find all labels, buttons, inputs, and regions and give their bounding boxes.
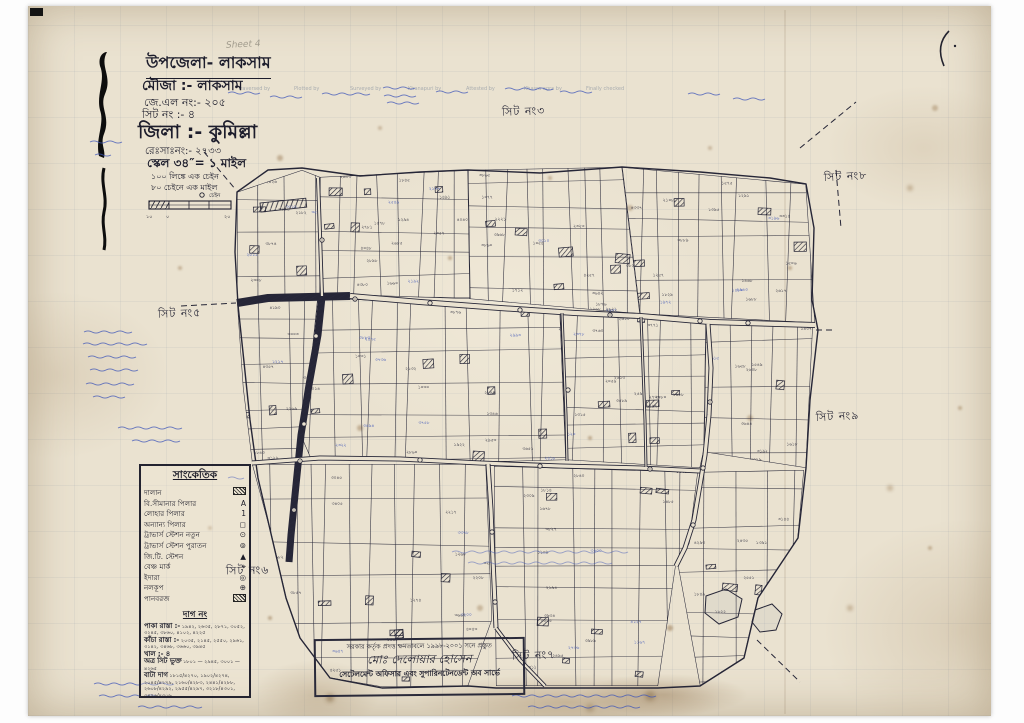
building-hatched (539, 429, 547, 438)
plot-number: ২৯৫৩ (485, 438, 496, 443)
legend-item-label: ট্রাভার্স স্টেশন পুরাতন (144, 541, 207, 552)
road-casing (318, 178, 322, 296)
plot-number: ২৬১৩ (614, 376, 625, 381)
plot-number: ১০৩১ (355, 354, 366, 359)
plot-number: ২৯৪৩ (737, 288, 748, 293)
plot-number: ১৬৭৮ (539, 507, 550, 512)
plot-number: ২৭৩৭ (649, 396, 660, 401)
plot-number: ৩০৪৫ (331, 476, 342, 481)
plot-number: ২৬৮২ (272, 556, 283, 561)
road-casing (488, 464, 496, 628)
scale-bar: ১০ ০ ২০ চেইন (146, 190, 246, 222)
plot-number: ২৩৭৮ (573, 332, 584, 337)
plot-number: ১২৬৮ (455, 553, 466, 558)
plot-number: ৩৮৮৯ (677, 239, 688, 244)
road-casing (289, 297, 322, 562)
plot-number: ১১৬৭ (634, 641, 645, 646)
road-casing (676, 324, 711, 566)
plot-number: ১০৫৪ (533, 241, 544, 246)
building-hatched (486, 220, 496, 227)
plot-number: ৩৭৫৭ (797, 175, 808, 180)
building-hatched (460, 354, 470, 363)
plot-number: ৩৫২৮ (311, 211, 322, 216)
parcel-block: ১৬৬০২৭৮১২১৯২২১৭৭২৩৫৭২৯০৩১৪৭৮১৪৯১৪০৪০২৮৯৮… (320, 170, 470, 299)
plot-number: ৩৮৬০ (481, 244, 492, 249)
plot-number: ২৩২২ (335, 443, 346, 448)
well-symbol (698, 319, 702, 323)
building-hatched (722, 583, 738, 592)
building-hatched (718, 457, 725, 463)
building-hatched (269, 406, 276, 415)
plot-number: ৩৯৬৮ (494, 233, 505, 238)
plot-number: ২১৩২ (405, 367, 416, 372)
blue-ink-scribble (83, 343, 147, 345)
plot-number: ৩১২৯ (267, 456, 278, 461)
well-symbol (298, 459, 302, 463)
plot-number: ১৮২২ (715, 610, 726, 615)
parcel-block: ৩৫১৯৩৫২৮৩৮৭৪২৩০৮২৬৯০৩৪৯৬২৫১১২৫৮৪২৪২৬২১৮২ (237, 170, 323, 302)
legend-item-label: পানবরজ (144, 594, 170, 605)
blue-ink-scribble (512, 695, 656, 697)
dag-row: অত্র সিট ভুক্ত ১৮০১ — ২৯৪৫, ৩০০১ — ৪২৬৫ (144, 658, 246, 672)
road-metalled (289, 297, 322, 562)
blue-ink-scribble (468, 562, 612, 564)
plot-number: ২৪৭৫ (365, 337, 376, 342)
form-column-label: Khanapuri by (408, 86, 441, 92)
road (562, 313, 567, 461)
plot-number: ৪১২৭ (630, 620, 641, 625)
binding-fold-mark (96, 50, 126, 260)
blue-ink-scribble (86, 383, 134, 385)
road (252, 458, 700, 471)
scalebar-left-label: ১০ (146, 214, 153, 220)
plot-number: ৩৩৩১ (531, 304, 542, 309)
plot-number: ৩৮২৮ (626, 264, 637, 269)
building-hatched (615, 253, 630, 264)
paper-stains (28, 6, 32, 10)
well-symbol (691, 523, 695, 527)
blue-ink-scribble (132, 440, 180, 442)
plot-number: ১৬১৫ (708, 356, 719, 361)
form-column-label: Surveyed by (350, 86, 381, 92)
plot-number: ৩৪০৫ (332, 502, 343, 507)
building-hatched (656, 488, 669, 494)
plot-number: ৩৬৬৭ (454, 613, 465, 618)
blue-ink-scribble (733, 98, 765, 100)
plot-number: ৩০০৩ (287, 332, 298, 337)
form-column-label: Plotted by (294, 86, 319, 92)
parcel-block: ৩৫৮৯২৬১৩২৭৩৭২৫৯৯২৫৪৭২৩৭৮২০৫৯৩৭৭১২০৮০১৯৮৮… (560, 311, 706, 468)
road-casing (252, 458, 700, 471)
pen-mark (933, 28, 963, 78)
plot-number: ২৮৬০ (406, 450, 417, 455)
well-symbol (302, 422, 306, 426)
legend-row: পানবরজ (144, 594, 246, 606)
plot-number: ৪২৫৭ (583, 274, 594, 279)
plot-number: ২৪২৬ (266, 180, 277, 185)
legend-item-symbol: 1 (233, 509, 246, 520)
plot-number: ১৪৭৮ (374, 221, 385, 226)
plot-number: ২১৯৪ (546, 586, 557, 591)
paper-fold-line (784, 10, 786, 714)
blue-ink-scribble (387, 102, 419, 104)
well-symbol (292, 508, 296, 512)
blue-ink-scribble (322, 93, 370, 95)
plot-number: ৩৮৭৬ (450, 310, 461, 315)
plot-number: ২৬১০ (618, 317, 629, 322)
building-hatched (706, 564, 716, 569)
plot-number: ১৮২৯ (662, 293, 673, 298)
plot-number: ২২১৭ (445, 511, 456, 516)
dag-row: বাটা দাগ ১৮১৫/৪২৭০, ১৯০২/৪২৭৪, ২০৪৫/৪২৭৯… (144, 672, 246, 699)
building-hatched (253, 207, 265, 212)
building-hatched (629, 433, 637, 443)
plot-number: ৩৮৫৭ (290, 591, 301, 596)
well-symbol (701, 466, 705, 470)
plot-number: ১৯৮৮ (673, 393, 684, 398)
plot-number: ৩৩৭৮ (458, 531, 469, 536)
legend-item-label: লোহার পিলার (144, 509, 185, 520)
dag-rows: পাকা রাস্তা :- ১৯৪২, ২৬৩৫, ২৮৭১, ৩০৫২, ৩… (144, 623, 246, 700)
road-casing (237, 296, 350, 303)
legend-row: লোহার পিলার1 (144, 509, 246, 520)
building-hatched (537, 617, 548, 626)
plot-number: ১৮৪৯ (694, 592, 705, 597)
legend-item-symbol: ◻ (233, 520, 246, 531)
plot-number: ১৬২৩ (257, 682, 268, 687)
road (641, 317, 646, 467)
sheet-edge-dash (800, 102, 856, 148)
well-symbol (320, 238, 324, 242)
legend-rows: দালানবি.সীমানার পিলারAলোহার পিলার1অন্যান… (144, 487, 246, 606)
plot-number: ১৫০৬ (785, 261, 796, 266)
plot-number: ৩২৮৫ (541, 619, 552, 624)
plot-number: ১২৯১ (738, 194, 749, 199)
adjacent-sheet-label: সিট নং৮ (824, 167, 868, 188)
plot-number: ১৯২২ (454, 443, 465, 448)
plot-number: ২৮৫০ (721, 671, 732, 676)
building-hatched (650, 438, 660, 444)
plot-number: ১৫৪৯ (751, 363, 762, 368)
building-hatched (708, 460, 717, 469)
plot-number: ২৫৪৭ (646, 405, 657, 410)
building-hatched (562, 658, 569, 663)
well-symbol (648, 467, 652, 471)
road (350, 296, 815, 325)
plot-number: ১১২০ (564, 432, 575, 437)
plot-number: ২৪১৮ (544, 457, 555, 462)
plot-number: ২১৭৭ (429, 187, 440, 192)
blue-ink-scribble (528, 706, 640, 708)
legend-item-label: নলকূপ (144, 583, 164, 594)
building-hatched (435, 186, 443, 192)
plot-number: ২৩৫৭ (433, 232, 444, 237)
plot-number: ৩৬৫১ (522, 447, 533, 452)
sheet-edge-dash (757, 640, 800, 682)
plot-number: ৪৩৫৭ (263, 365, 274, 370)
building-hatched (329, 188, 342, 196)
approval-stamp-box: সরকার কর্তৃক প্রদত্ত ক্ষমতাবলে ১৯৯৮-২০০১… (314, 637, 526, 697)
blue-ink-scribble (452, 551, 628, 553)
plot-number: ২২০৮ (473, 576, 484, 581)
plot-number: ৩৮৮৩ (359, 336, 370, 341)
ladder-road-symbol (260, 198, 307, 212)
plot-number: ৩৭৬০ (592, 329, 603, 334)
parcel-block: ৪১৯০৩০০৩৩১২৯৩৫৭৬১৮৪৩৪৩৫৭১২১৭২২৬৯ (237, 297, 318, 462)
plot-number: ২১০৮ (663, 199, 674, 204)
pond-outline (752, 604, 782, 632)
plot-number: ৪০৪৩ (466, 627, 477, 632)
building-hatched (365, 596, 373, 605)
plot-number: ১৪৮৫ (663, 500, 674, 505)
parcel-block: ২৬০৮১৫৪৯১৬১৮৩৬৪৪৩০২৯১৬৫৮১৪৩৭৩১৯২১৬১৫ (704, 320, 813, 469)
building-hatched (250, 246, 260, 254)
plot-number: ৪১৯০ (269, 306, 280, 311)
plot-number: ১৮১৪ (541, 489, 552, 494)
building-hatched (242, 412, 249, 417)
road-casing (641, 317, 646, 467)
dag-section-title: দাগ নং (144, 608, 246, 622)
plot-number: ৩৯৩৪ (544, 614, 555, 619)
building-hatched (591, 629, 602, 634)
plot-number: ১৬১৮ (786, 442, 797, 447)
plot-number: ৪০৪৮ (360, 246, 371, 251)
plot-number: ২৫৫১ (743, 576, 754, 581)
building-hatched (521, 310, 529, 317)
adjacent-sheet-label: সিট নং৩ (502, 102, 546, 123)
road (676, 324, 711, 566)
plot-number: ২৫৮৪ (286, 295, 297, 300)
mouza-boundary (235, 167, 818, 688)
well-symbol (418, 458, 422, 462)
plot-number: ২১৯২ (408, 280, 419, 285)
plot-number: ৩৯৮৯ (585, 639, 596, 644)
plot-number: ৩২০০ (461, 613, 472, 618)
plot-number: ২২২১ (495, 217, 506, 222)
adjacent-sheet-label: সিট নং৫ (158, 304, 202, 325)
plot-number: ১১০৯ (537, 551, 548, 556)
plot-number: ৩৬৪২ (592, 292, 603, 297)
plot-number: ১২১৭ (272, 360, 283, 365)
scalebar-zero-label: ০ (166, 214, 169, 220)
plot-number: ১৬৮৮ (745, 297, 756, 302)
plot-number: ৩২৮৩ (483, 562, 494, 567)
plot-number: ২৯০৭ (606, 309, 617, 314)
building-hatched (637, 316, 645, 323)
plot-number: ৩৮৬৫ (479, 174, 490, 179)
plot-number: ১২৬৪ (432, 302, 443, 307)
plot-number: ২৩২৩ (573, 225, 584, 230)
building-hatched (794, 242, 806, 251)
building-hatched (674, 198, 684, 206)
building-hatched (598, 401, 610, 407)
plot-number: ২০৮০ (655, 396, 666, 401)
plot-number: ২২৬৯ (286, 407, 297, 412)
plot-number: ২৬৮৫ (391, 242, 402, 247)
building-hatched (758, 208, 771, 215)
legend-title: সাংকেতিক (144, 468, 246, 485)
building-hatched (351, 223, 360, 232)
plot-number: ৩১৯২ (757, 450, 768, 455)
parcel-block: ২১০৮৪৩৩৭১৮২৯১৪৬৮১৫০৬১২৫৭১৯৭২১৬৮৮৩১৯৬৩৭৫৭… (622, 167, 815, 323)
adjacent-sheet-label: সিট নং৭ (512, 646, 556, 667)
plot-number: ৩৪৯৪ (363, 424, 374, 429)
plot-number: ৩৭৭১ (647, 323, 658, 328)
plot-number: ১৪৯১ (439, 195, 450, 200)
plot-number: ১৩৯১ (756, 541, 767, 546)
stamp-signature: মোঃ দেলোয়ার হোসেন (318, 650, 521, 669)
plot-number: ১২৬৮ (590, 307, 601, 312)
road (488, 464, 496, 628)
building-hatched (390, 630, 403, 636)
plot-number: ১৫০৫ (502, 302, 513, 307)
legend-item-label: জি.টি. স্টেশন (144, 552, 183, 563)
parcel-block: ৩৬৪২২৯০৭১২৬৮৩৮৬৫৪২৫৭২৬২১৩৮৬০১০৫৪৩০১০১৮৭৬… (468, 167, 640, 314)
pond-outline (705, 589, 742, 624)
blue-ink-scribble (90, 369, 138, 371)
road (318, 178, 322, 296)
building-hatched (636, 292, 649, 299)
building-hatched (395, 629, 404, 638)
plot-number: ২৬০৮ (746, 368, 757, 373)
plot-number: ২৫৪৯ (388, 201, 399, 206)
well-symbol (708, 400, 712, 404)
building-hatched (627, 290, 636, 296)
plot-number: ৩৫৭৬ (303, 376, 314, 381)
legend-item-symbol (233, 594, 246, 606)
plot-number: ৩১৯৬ (768, 217, 779, 222)
plot-number: ২৫১১ (246, 253, 257, 258)
plot-number: ২৫৯০ (554, 310, 565, 315)
building-hatched (412, 551, 421, 557)
plot-number: ২৭৩৬ (568, 646, 579, 651)
blue-ink-scribble (118, 427, 182, 429)
well-symbol (314, 334, 318, 338)
form-column-label: Khasra agra by (524, 86, 562, 92)
legend-item-symbol: A (233, 499, 246, 510)
blue-ink-scribble (84, 331, 132, 333)
plot-number: ১৬৬০ (387, 282, 398, 287)
plot-number: ৪৩৩৭ (631, 206, 642, 211)
plot-number: ১২৭৪ (410, 599, 421, 604)
plot-number: ২০৫৯ (605, 380, 616, 385)
scalebar-unit-label: চেইন (209, 192, 221, 199)
plot-number: ৩৪৯৬ (278, 207, 289, 212)
plot-number: ১৬৫৮ (735, 364, 746, 369)
building-hatched (640, 487, 652, 494)
plot-number: ১৪৬৮ (741, 279, 752, 284)
plot-number: ২৫৮০ (261, 583, 272, 588)
plot-number: ২৩০৮ (250, 279, 261, 284)
plot-number: ১৩১৫ (574, 413, 585, 418)
building-hatched (633, 260, 644, 267)
adjacent-sheet-label: সিট নং৯ (816, 407, 860, 428)
building-hatched (558, 247, 573, 257)
scalebar-right-label: ২০ (224, 214, 231, 220)
plot-number: ২৩০৯ (523, 494, 534, 499)
plot-number: ৩৮৭৪ (265, 242, 276, 247)
plot-number: ১৮৭৬ (595, 303, 606, 308)
legend-item-symbol: ⊕ (233, 583, 246, 594)
plot-number: ১৮৪৫ (399, 179, 410, 184)
plot-number: ২০৩৯ (558, 327, 569, 332)
plot-number: ২৬৯০ (242, 183, 253, 188)
scanned-mouza-map-page: Sheet 4 Traversed byPlotted bySurveyed b… (0, 0, 1024, 723)
plot-number: ২৭৮১ (361, 225, 372, 230)
blue-ink-scribble (270, 96, 302, 98)
plot-number: ৩০২৯ (750, 458, 761, 463)
plot-number: ১০৭৭ (481, 195, 492, 200)
plot-number: ২১৮২ (295, 211, 306, 216)
building-hatched (515, 228, 527, 236)
plot-number: ১৭১২ (512, 289, 523, 294)
plot-number: ২৬৪০ (795, 637, 806, 642)
adjacent-sheet-label: সিট নং৬ (226, 562, 270, 582)
well-symbol (493, 600, 497, 604)
dag-row: কাঁচা রাস্তা :- ২০৩৫, ২১৪৫, ২৫৫০, ২৯৬১, … (144, 637, 246, 651)
well-symbol (490, 530, 494, 534)
building-hatched (423, 359, 434, 369)
corner-ink-mark (30, 8, 43, 16)
legend-item-symbol: ⊙ (233, 530, 246, 541)
building-hatched (297, 266, 307, 275)
well-symbol (608, 313, 612, 317)
plot-number: ১২৫৭ (653, 274, 664, 279)
plot-number: ১৩৪৬ (486, 412, 497, 417)
road-metalled (237, 296, 350, 303)
well-symbol (746, 321, 750, 325)
building-hatched (635, 671, 643, 677)
plot-number: ১৮৪৩ (254, 451, 265, 456)
plot-number: ২৮৪৯ (484, 391, 495, 396)
map-paper-sheet: Sheet 4 Traversed byPlotted bySurveyed b… (28, 6, 991, 716)
dag-row: পাকা রাস্তা :- ১৯৪২, ২৬৩৫, ২৮৭১, ৩০৫২, ৩… (144, 623, 246, 637)
plot-number: ৩৪৫৭ (265, 651, 276, 656)
plot-number: ২৯৯৩ (510, 334, 521, 339)
building-hatched (324, 223, 334, 229)
road-casing (562, 313, 567, 461)
plot-number: ৩৪০০ (591, 549, 602, 554)
plot-number: ১৫৭৫ (721, 182, 732, 187)
legend-item-label: ট্রাভার্স স্টেশন নতুন (144, 530, 200, 541)
plot-number: ১৩৯৫ (708, 208, 719, 213)
legend-row: নলকূপ⊕ (144, 583, 246, 594)
legend-item-label: বেঞ্চ মার্ক (144, 562, 171, 573)
plot-number: ১৫৭১ (676, 470, 687, 475)
blue-ink-scribble (688, 93, 720, 95)
plot-number: ১২৯৪ (398, 218, 409, 223)
building-hatched (364, 189, 371, 195)
blue-ink-scribble (93, 396, 125, 398)
legend-row: জি.টি. স্টেশন▲ (144, 552, 246, 563)
building-hatched (546, 493, 556, 500)
plot-number: ৩৪৪১ (263, 589, 274, 594)
plot-number: ৩৮২৭ (545, 528, 556, 533)
plot-number: ১৪৮০ (732, 288, 743, 293)
legend-item-label: অন্যান্য পিলার (144, 520, 186, 531)
well-symbol (353, 297, 357, 301)
plot-number: ৪৩৮০ (357, 283, 368, 288)
legend-item-label: বি.সীমানার পিলার (144, 499, 196, 510)
plot-number: ১০১৪ (309, 387, 320, 392)
legend-item-symbol: ▲ (233, 552, 246, 563)
plot-number: ৩০১০ (538, 239, 549, 244)
legend-row: অন্যান্য পিলার◻ (144, 520, 246, 531)
building-hatched (647, 400, 660, 407)
plot-number: ২৯০৩ (340, 175, 351, 180)
plot-number: ২৪৩৫ (737, 539, 748, 544)
plot-number: ৩৬৪৪ (741, 422, 752, 427)
